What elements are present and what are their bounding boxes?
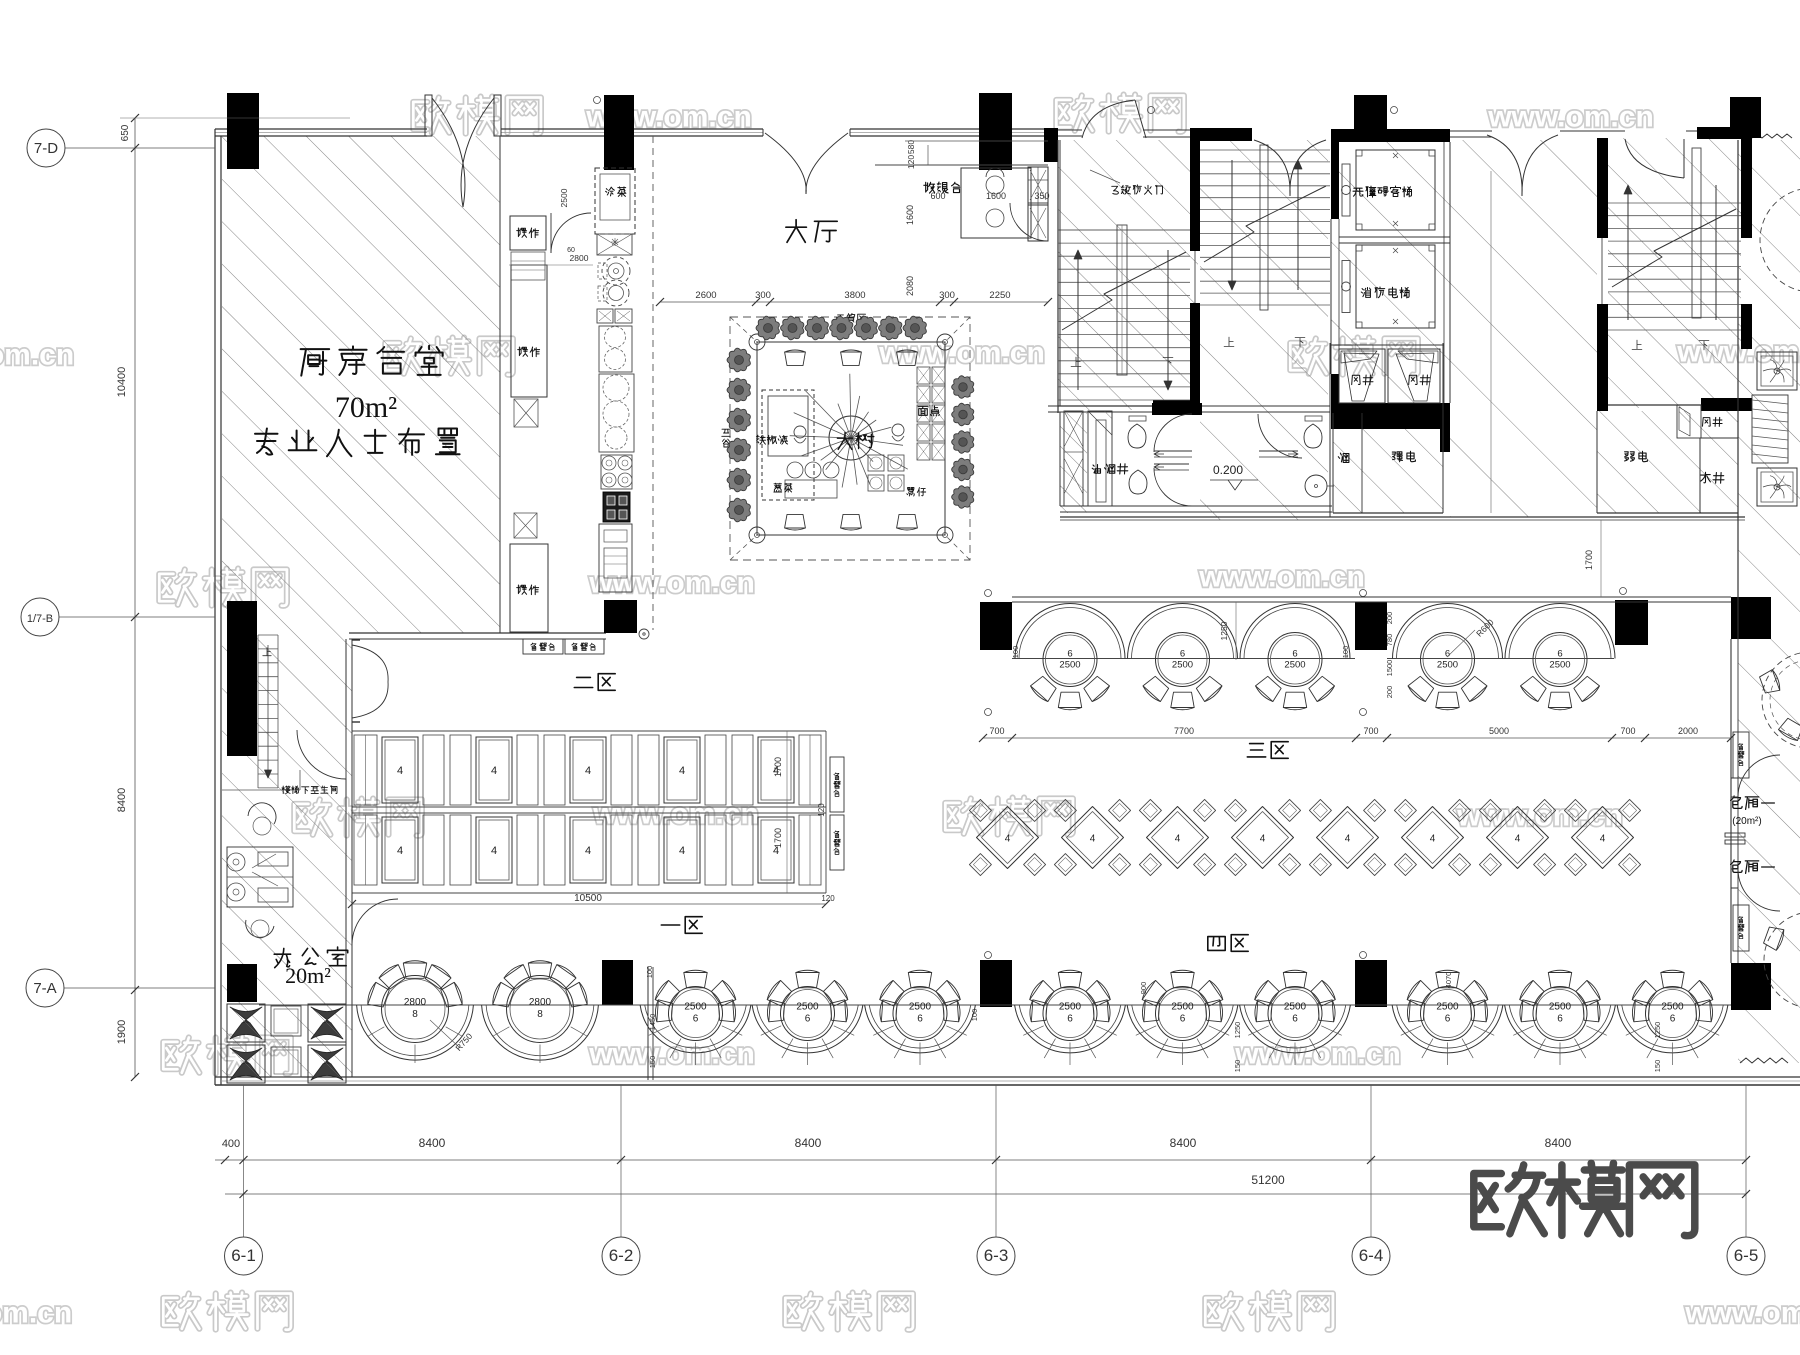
svg-text:70m²: 70m² bbox=[335, 391, 397, 424]
svg-text:1600: 1600 bbox=[986, 191, 1006, 201]
svg-text:8400: 8400 bbox=[419, 1136, 446, 1150]
svg-text:6: 6 bbox=[1180, 649, 1185, 660]
svg-text:2600: 2600 bbox=[695, 290, 716, 301]
svg-text:200: 200 bbox=[1385, 612, 1394, 625]
svg-text:6: 6 bbox=[1292, 649, 1297, 660]
svg-text:www.om.cn: www.om.cn bbox=[1684, 1297, 1800, 1330]
svg-text:1/7-B: 1/7-B bbox=[27, 613, 53, 625]
svg-text:900: 900 bbox=[1139, 982, 1148, 995]
svg-text:0.200: 0.200 bbox=[1213, 463, 1243, 477]
svg-text:200: 200 bbox=[1385, 686, 1394, 699]
svg-text:4: 4 bbox=[1005, 834, 1011, 845]
svg-text:6: 6 bbox=[1445, 649, 1450, 660]
svg-text:6-3: 6-3 bbox=[984, 1246, 1009, 1265]
svg-text:6: 6 bbox=[1557, 1014, 1563, 1025]
svg-text:1900: 1900 bbox=[116, 1020, 128, 1044]
svg-text:4: 4 bbox=[585, 765, 591, 777]
svg-text:1250: 1250 bbox=[1233, 1022, 1242, 1039]
svg-text:700: 700 bbox=[1363, 726, 1378, 736]
svg-text:51200: 51200 bbox=[1251, 1173, 1285, 1187]
svg-text:4: 4 bbox=[397, 845, 403, 857]
svg-text:(20m²): (20m²) bbox=[1732, 816, 1761, 827]
svg-text:4: 4 bbox=[1345, 834, 1351, 845]
svg-text:1700: 1700 bbox=[773, 757, 783, 777]
svg-text:150: 150 bbox=[648, 1056, 657, 1069]
svg-text:100: 100 bbox=[645, 966, 654, 979]
svg-text:400: 400 bbox=[222, 1138, 240, 1150]
svg-text:8400: 8400 bbox=[1545, 1136, 1572, 1150]
svg-text:6: 6 bbox=[693, 1014, 699, 1025]
svg-text:2500: 2500 bbox=[684, 1002, 707, 1013]
svg-text:1600: 1600 bbox=[905, 205, 915, 225]
svg-text:600: 600 bbox=[930, 191, 945, 201]
svg-text:10400: 10400 bbox=[116, 367, 128, 398]
svg-text:6: 6 bbox=[805, 1014, 811, 1025]
svg-text:700: 700 bbox=[1620, 726, 1635, 736]
svg-text:6-2: 6-2 bbox=[609, 1246, 634, 1265]
svg-text:4: 4 bbox=[491, 765, 497, 777]
svg-text:2800: 2800 bbox=[529, 997, 552, 1008]
svg-text:300: 300 bbox=[939, 290, 955, 301]
svg-text:4: 4 bbox=[679, 765, 685, 777]
svg-text:8: 8 bbox=[412, 1009, 418, 1020]
svg-text:1450: 1450 bbox=[648, 1014, 657, 1031]
svg-text:2800: 2800 bbox=[570, 253, 589, 263]
svg-text:1500: 1500 bbox=[1385, 660, 1394, 677]
svg-text:1250: 1250 bbox=[1219, 621, 1229, 640]
svg-text:4: 4 bbox=[1175, 834, 1181, 845]
svg-text:7-D: 7-D bbox=[34, 140, 58, 157]
svg-text:2500: 2500 bbox=[1284, 1002, 1307, 1013]
svg-text:2500: 2500 bbox=[559, 188, 569, 207]
svg-text:2500: 2500 bbox=[909, 1002, 932, 1013]
svg-text:2250: 2250 bbox=[989, 290, 1010, 301]
svg-text:2080: 2080 bbox=[905, 276, 915, 296]
svg-text:2000: 2000 bbox=[1678, 726, 1698, 736]
svg-text:www.om.cn: www.om.cn bbox=[1234, 1038, 1401, 1071]
svg-text:4: 4 bbox=[679, 845, 685, 857]
svg-text:2500: 2500 bbox=[1437, 660, 1458, 671]
svg-text:10500: 10500 bbox=[574, 893, 602, 904]
svg-text:1250: 1250 bbox=[1653, 1022, 1662, 1039]
svg-text:2500: 2500 bbox=[1549, 1002, 1572, 1013]
svg-text:4070: 4070 bbox=[1444, 972, 1453, 989]
svg-text:2500: 2500 bbox=[796, 1002, 819, 1013]
svg-text:150: 150 bbox=[1233, 1060, 1242, 1073]
svg-text:6-1: 6-1 bbox=[231, 1246, 256, 1265]
svg-text:8400: 8400 bbox=[1170, 1136, 1197, 1150]
svg-text:3800: 3800 bbox=[844, 290, 865, 301]
svg-text:6: 6 bbox=[1670, 1014, 1676, 1025]
svg-text:20m²: 20m² bbox=[285, 963, 331, 988]
svg-text:6: 6 bbox=[1557, 649, 1562, 660]
svg-text:5000: 5000 bbox=[1489, 726, 1509, 736]
svg-text:2500: 2500 bbox=[1661, 1002, 1684, 1013]
svg-text:www.om.cn: www.om.cn bbox=[592, 798, 759, 831]
svg-text:om.cn: om.cn bbox=[0, 339, 74, 372]
svg-text:www.om.cn: www.om.cn bbox=[588, 567, 755, 600]
svg-text:7700: 7700 bbox=[1174, 726, 1194, 736]
svg-text:4: 4 bbox=[1430, 834, 1436, 845]
svg-text:2500: 2500 bbox=[1284, 660, 1305, 671]
svg-text:6: 6 bbox=[1180, 1014, 1186, 1025]
svg-text:2500: 2500 bbox=[1549, 660, 1570, 671]
svg-text:4: 4 bbox=[1260, 834, 1266, 845]
svg-text:www.om.cn: www.om.cn bbox=[1487, 101, 1654, 134]
svg-text:4: 4 bbox=[1090, 834, 1096, 845]
svg-text:6-4: 6-4 bbox=[1359, 1246, 1384, 1265]
svg-text:2500: 2500 bbox=[1172, 660, 1193, 671]
svg-text:100: 100 bbox=[970, 1009, 979, 1022]
svg-text:120: 120 bbox=[821, 894, 835, 903]
svg-text:www.om.cn: www.om.cn bbox=[1198, 561, 1365, 594]
svg-text:4: 4 bbox=[1600, 834, 1606, 845]
svg-text:6: 6 bbox=[1067, 1014, 1073, 1025]
svg-text:8: 8 bbox=[537, 1009, 543, 1020]
svg-text:120: 120 bbox=[817, 803, 826, 817]
svg-text:120: 120 bbox=[906, 155, 916, 169]
svg-text:4: 4 bbox=[585, 845, 591, 857]
svg-text:om.cn: om.cn bbox=[0, 1297, 72, 1330]
svg-text:4: 4 bbox=[491, 845, 497, 857]
svg-text:2500: 2500 bbox=[1436, 1002, 1459, 1013]
svg-text:8400: 8400 bbox=[795, 1136, 822, 1150]
svg-text:300: 300 bbox=[755, 290, 771, 301]
svg-text:1700: 1700 bbox=[773, 828, 783, 848]
svg-text:1700: 1700 bbox=[1584, 550, 1594, 570]
svg-text:4: 4 bbox=[1515, 834, 1521, 845]
svg-text:6: 6 bbox=[1067, 649, 1072, 660]
svg-text:650: 650 bbox=[120, 124, 131, 141]
svg-text:2500: 2500 bbox=[1059, 1002, 1082, 1013]
svg-text:www.om.cn: www.om.cn bbox=[878, 337, 1045, 370]
svg-text:700: 700 bbox=[989, 726, 1004, 736]
svg-text:2500: 2500 bbox=[1171, 1002, 1194, 1013]
svg-text:780: 780 bbox=[1385, 634, 1394, 647]
svg-text:8400: 8400 bbox=[116, 788, 128, 812]
svg-text:2800: 2800 bbox=[404, 997, 427, 1008]
svg-text:7-A: 7-A bbox=[33, 980, 56, 997]
svg-text:580: 580 bbox=[906, 140, 916, 154]
svg-text:6: 6 bbox=[1445, 1014, 1451, 1025]
svg-text:150: 150 bbox=[1653, 1060, 1662, 1073]
svg-text:6: 6 bbox=[917, 1014, 923, 1025]
svg-text:6-5: 6-5 bbox=[1734, 1246, 1759, 1265]
svg-text:4: 4 bbox=[397, 765, 403, 777]
svg-text:2500: 2500 bbox=[1059, 660, 1080, 671]
svg-text:6: 6 bbox=[1292, 1014, 1298, 1025]
